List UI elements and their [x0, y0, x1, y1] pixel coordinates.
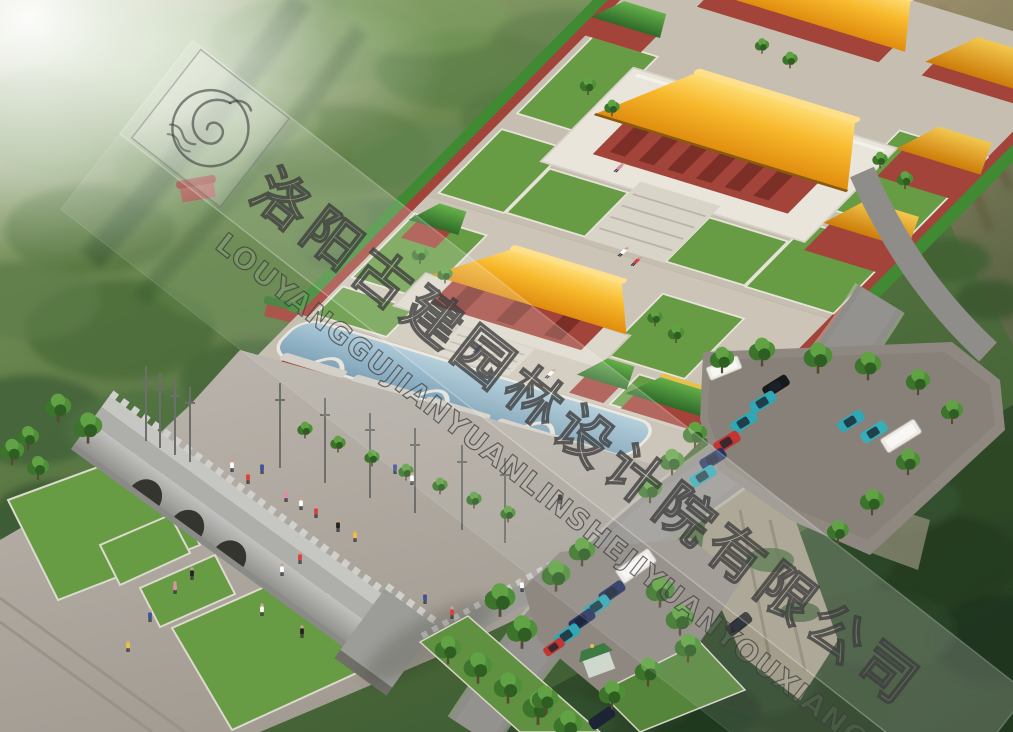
scene-svg: 洛阳古建园林设计院有限公司 LOUYANGGUJIANYUANLINSHEJIY… — [0, 0, 1013, 732]
rendering-canvas: 洛阳古建园林设计院有限公司 LOUYANGGUJIANYUANLINSHEJIY… — [0, 0, 1013, 732]
